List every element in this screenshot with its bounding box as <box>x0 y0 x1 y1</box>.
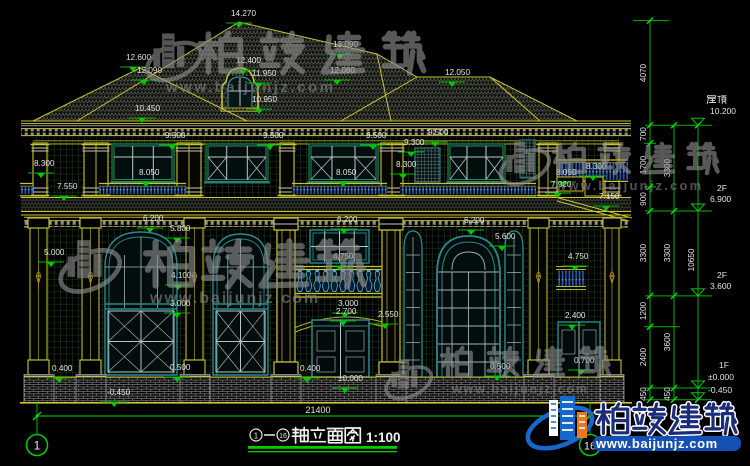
svg-text:450: 450 <box>639 387 648 401</box>
svg-text:2F: 2F <box>717 270 727 280</box>
svg-text:6.200: 6.200 <box>143 214 164 223</box>
svg-text:16: 16 <box>279 433 287 440</box>
svg-text:www.baijunjz.com: www.baijunjz.com <box>451 382 589 396</box>
svg-text:www.baijunjz.com: www.baijunjz.com <box>555 178 703 193</box>
svg-text:12.050: 12.050 <box>445 68 470 77</box>
svg-text:10.450: 10.450 <box>135 104 160 113</box>
svg-text:2.700: 2.700 <box>336 307 357 316</box>
svg-text:1200: 1200 <box>639 301 648 320</box>
svg-text:1F: 1F <box>719 360 729 370</box>
svg-text:3300: 3300 <box>639 243 648 262</box>
svg-text:±0.000: ±0.000 <box>338 374 363 383</box>
svg-text:5.600: 5.600 <box>495 232 516 241</box>
svg-text:700: 700 <box>639 127 648 141</box>
svg-text:9.500: 9.500 <box>165 131 186 140</box>
svg-text:1: 1 <box>254 432 259 441</box>
svg-text:www.baijunjz.com: www.baijunjz.com <box>149 290 320 307</box>
svg-text:10.950: 10.950 <box>252 95 277 104</box>
svg-text:3600: 3600 <box>663 332 672 351</box>
svg-text:-0.450: -0.450 <box>107 388 131 397</box>
svg-text:5.800: 5.800 <box>170 224 191 233</box>
svg-text:3.600: 3.600 <box>710 281 732 291</box>
svg-text:4.750: 4.750 <box>568 252 589 261</box>
svg-text:11.950: 11.950 <box>252 69 277 78</box>
svg-text:6.900: 6.900 <box>710 194 732 204</box>
svg-text:450: 450 <box>663 387 672 401</box>
svg-text:6.200: 6.200 <box>337 215 358 224</box>
svg-text:10650: 10650 <box>687 248 696 271</box>
svg-text:2.400: 2.400 <box>565 311 586 320</box>
svg-text:9.500: 9.500 <box>366 131 387 140</box>
svg-text:0.400: 0.400 <box>52 364 73 373</box>
svg-text:7.150: 7.150 <box>599 192 620 201</box>
svg-text:0.400: 0.400 <box>300 364 321 373</box>
svg-text:0.500: 0.500 <box>170 363 191 372</box>
svg-text:1: 1 <box>34 439 41 453</box>
svg-text:-0.450: -0.450 <box>708 385 732 395</box>
svg-text:5.000: 5.000 <box>44 248 65 257</box>
svg-text:4.100: 4.100 <box>171 271 192 280</box>
svg-text:6.200: 6.200 <box>464 216 485 225</box>
svg-text:9.500: 9.500 <box>263 131 284 140</box>
svg-text:2F: 2F <box>717 183 727 193</box>
svg-text:21400: 21400 <box>305 405 330 415</box>
svg-text:9.500: 9.500 <box>428 128 449 137</box>
svg-text:2.550: 2.550 <box>378 310 399 319</box>
svg-text:±0.000: ±0.000 <box>708 372 734 382</box>
svg-text:9.300: 9.300 <box>404 138 425 147</box>
svg-text:2400: 2400 <box>639 347 648 366</box>
svg-text:3300: 3300 <box>663 243 672 262</box>
svg-text:8.300: 8.300 <box>396 160 417 169</box>
svg-text:4070: 4070 <box>639 63 648 82</box>
svg-text:900: 900 <box>639 192 648 206</box>
svg-text:www.baijunjz.com: www.baijunjz.com <box>165 79 335 96</box>
svg-text:8.050: 8.050 <box>139 168 160 177</box>
svg-text:8.300: 8.300 <box>34 159 55 168</box>
svg-text:10.200: 10.200 <box>710 106 736 116</box>
svg-text:www.baijunjz.com: www.baijunjz.com <box>595 436 718 451</box>
svg-text:8.050: 8.050 <box>336 168 357 177</box>
svg-text:7.550: 7.550 <box>57 182 78 191</box>
svg-text:1:100: 1:100 <box>366 430 401 445</box>
svg-text:14.270: 14.270 <box>231 9 256 18</box>
